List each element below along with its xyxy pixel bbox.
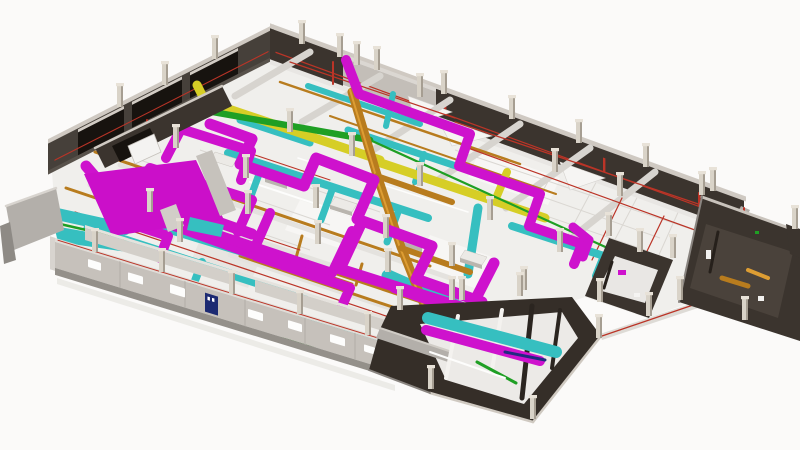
bim-render-stage [0, 0, 800, 450]
navy-entry-door [205, 293, 218, 316]
bim-model-render [0, 0, 800, 450]
